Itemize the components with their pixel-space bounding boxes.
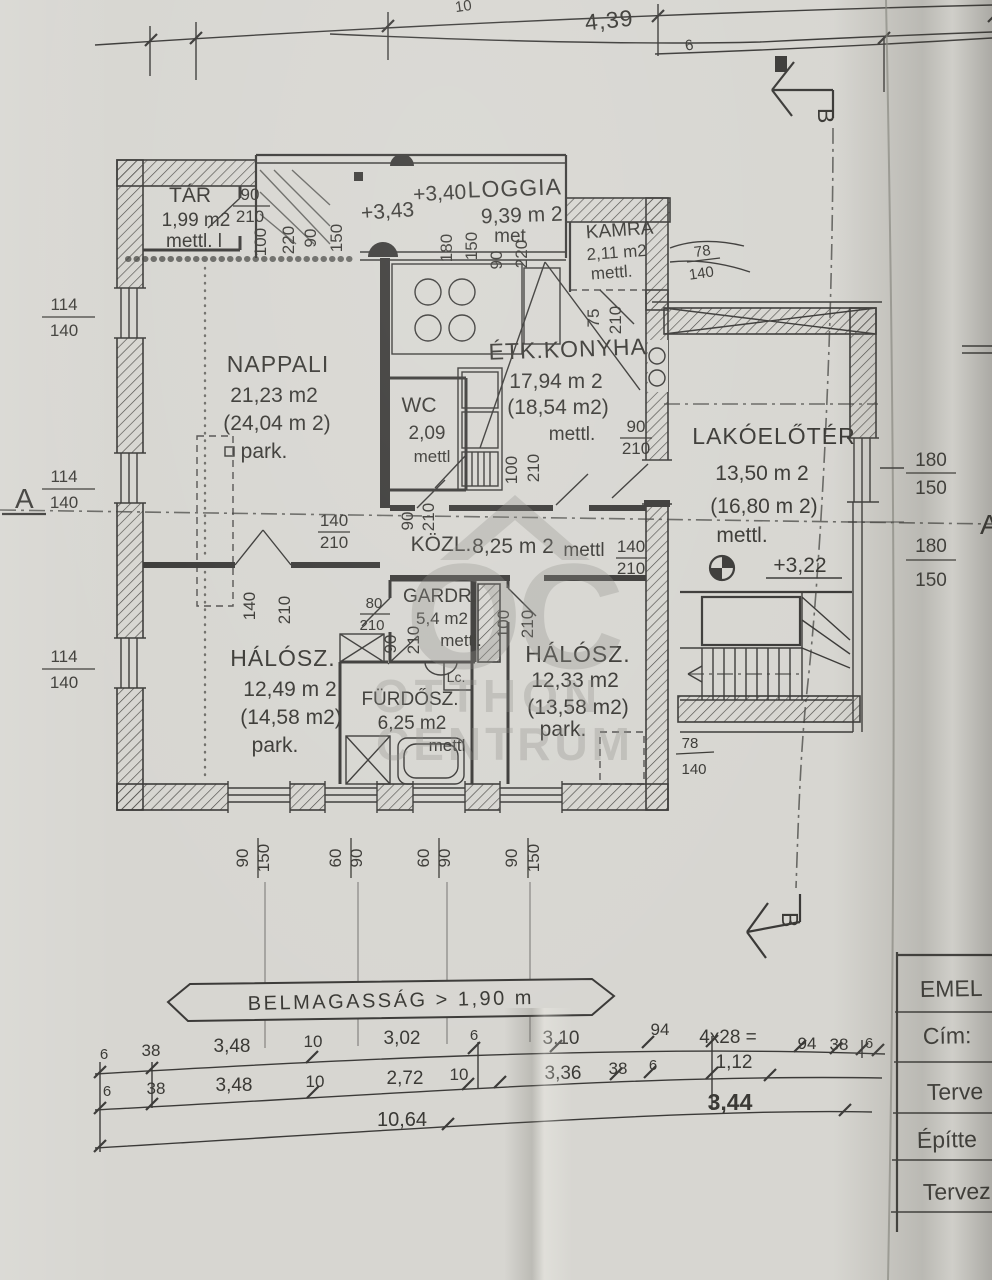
chain-dim: 38 <box>142 1041 161 1060</box>
room-konyha-floor: mettl. <box>549 424 595 445</box>
titleblock-row: EMEL <box>920 975 983 1002</box>
chain-dim: 3,48 <box>214 1036 251 1057</box>
chain-dim: 10 <box>450 1065 469 1084</box>
chain-dim: 6 <box>103 1083 111 1100</box>
chain-dim: 3,10 <box>543 1028 580 1049</box>
room-konyha-area: 17,94 m 2 <box>509 370 602 393</box>
dim-label: 210 <box>320 533 348 552</box>
chain-dim: 38 <box>147 1079 166 1098</box>
chain-dim: 6 <box>865 1035 873 1052</box>
watermark-line1: OTTHON <box>373 670 603 722</box>
level-terrace: +3,43 <box>360 198 415 225</box>
chain-dim: 38 <box>830 1035 849 1054</box>
dim-label: 100 <box>502 456 521 484</box>
section-a-label-left: A <box>15 483 34 514</box>
chain-dim: 6 <box>470 1027 478 1044</box>
chain-dim: 6 <box>100 1046 108 1063</box>
dim-label: 210 <box>524 454 543 482</box>
room-kamra-floor: mettl. <box>590 262 633 284</box>
dim-label: 210 <box>622 439 650 458</box>
titleblock-row: Építte <box>917 1126 978 1153</box>
dimension-chains: 6 38 3,48 10 3,02 6 3,10 94 4x28 = 94 38… <box>94 1020 885 1152</box>
dim-label: 114 <box>50 295 77 314</box>
title-block: EMEL Cím: Terve Építte Tervez <box>891 952 992 1232</box>
dim-label: 150 <box>254 844 273 872</box>
dim-label: 90 <box>301 229 320 248</box>
dim-top-10: 10 <box>454 0 473 16</box>
room-lakoeloter-floor: mettl. <box>716 524 767 547</box>
chain-dim: 2,72 <box>387 1068 424 1089</box>
chain-dim: 10 <box>304 1032 323 1051</box>
dim-label: 90 <box>487 251 506 270</box>
room-lakoeloter-area: 13,50 m 2 <box>715 462 808 485</box>
room-tar-name: TÁR <box>169 184 211 207</box>
room-wc-floor: mettl <box>414 447 451 466</box>
room-lakoeloter-area-alt: (16,80 m 2) <box>710 495 817 518</box>
room-konyha-area-alt: (18,54 m2) <box>507 396 609 419</box>
watermark: OC OTTHON CENTRUM <box>373 495 634 770</box>
dim-label: 220 <box>512 240 531 268</box>
room-wc-name: WC <box>402 394 437 417</box>
dim-label: 210 <box>236 207 264 226</box>
floorplan-svg: 4,39 6 10 A A B B <box>0 0 992 1280</box>
room-halosz1-area-alt: (14,58 m2) <box>240 706 342 729</box>
dim-label: 140 <box>320 511 348 530</box>
dim-label: 150 <box>915 478 947 499</box>
dim-label: 90 <box>241 185 260 204</box>
chain-dim: 1,12 <box>716 1052 753 1073</box>
scanned-floorplan-page: 4,39 6 10 A A B B <box>0 0 992 1280</box>
room-halosz1-name: HÁLÓSZ. <box>230 645 335 671</box>
room-nappali-floor: park. <box>241 440 288 463</box>
titleblock-row: Cím: <box>923 1022 972 1049</box>
dim-label: 90 <box>398 512 417 531</box>
dim-label: 140 <box>617 537 645 556</box>
dim-label: 60 <box>326 849 345 868</box>
chain-dim-344: 3,44 <box>708 1089 753 1115</box>
dim-label: 140 <box>50 673 78 692</box>
top-sheet-fragment: 4,39 6 10 <box>95 0 992 92</box>
dim-label: 140 <box>688 263 715 283</box>
room-konyha-name: ÉTK.KONYHA <box>488 333 647 365</box>
level-entry: +3,22 <box>773 554 826 577</box>
room-nappali-area: 21,23 m2 <box>230 384 318 407</box>
dim-label: 114 <box>50 647 77 666</box>
dim-label: 140 <box>681 761 706 778</box>
chain-dim: 3,48 <box>216 1075 253 1096</box>
dim-label: 90 <box>502 849 521 868</box>
dim-label: 180 <box>915 536 947 557</box>
dim-label: 78 <box>682 735 699 752</box>
room-loggia-name: LOGGIA <box>467 173 562 202</box>
section-b-label-top: B <box>813 108 839 124</box>
room-lakoeloter-name: LAKÓELŐTÉR <box>692 423 855 449</box>
dim-label: 140 <box>240 592 259 620</box>
titleblock-row: Terve <box>927 1078 984 1105</box>
dim-label: 78 <box>693 242 712 261</box>
room-wc-area: 2,09 <box>409 423 446 444</box>
headroom-banner: BELMAGASSÁG > 1,90 m <box>168 979 614 1021</box>
level-loggia: +3,40 <box>413 181 467 207</box>
section-a-label-right: A <box>980 509 992 540</box>
dim-label: 90 <box>347 849 366 868</box>
section-b-label-bottom: B <box>777 912 803 928</box>
chain-ticks <box>94 1035 884 1152</box>
dim-label: 150 <box>462 232 481 260</box>
chain-dim: 94 <box>798 1034 817 1053</box>
dim-label: 210 <box>606 306 625 334</box>
dim-top-total: 4,39 <box>584 5 635 36</box>
watermark-line2: CENTRUM <box>376 718 634 770</box>
room-kamra-area: 2,11 m2 <box>586 241 647 264</box>
room-tar-area: 1,99 m2 <box>162 210 231 231</box>
room-halosz1-area: 12,49 m 2 <box>243 678 336 701</box>
chain-dim: 3,02 <box>384 1028 421 1049</box>
room-tar-floor: mettl. l <box>166 231 222 252</box>
chain-dim: 10 <box>306 1072 325 1091</box>
chain-dim: 4x28 = <box>699 1027 757 1048</box>
chain-dim: 3,36 <box>545 1063 582 1084</box>
dim-label: 180 <box>915 450 947 471</box>
room-nappali-area-alt: (24,04 m 2) <box>223 412 330 435</box>
dim-label: 100 <box>251 228 270 256</box>
dim-label: 150 <box>915 570 947 591</box>
chain-dim: 38 <box>609 1059 628 1078</box>
dim-label: 90 <box>381 635 400 654</box>
dim-label: 180 <box>437 234 456 262</box>
titleblock-row: Tervez <box>923 1178 991 1205</box>
dim-label: 210 <box>275 596 294 624</box>
dim-label: 90 <box>435 849 454 868</box>
dim-label: 220 <box>279 226 298 254</box>
room-loggia-area: 9,39 m 2 <box>481 203 563 229</box>
dim-label: 80 <box>366 595 383 612</box>
dim-label: 114 <box>50 467 77 486</box>
room-nappali-name: NAPPALI <box>227 351 329 377</box>
chain-dim: 94 <box>651 1020 670 1039</box>
dim-label: 90 <box>627 417 646 436</box>
dim-label: 210 <box>419 503 438 531</box>
dim-top-6: 6 <box>684 36 695 54</box>
chain-dim: 6 <box>649 1057 657 1074</box>
dim-label: 140 <box>50 493 78 512</box>
dim-label: 150 <box>327 224 346 252</box>
dim-label: 140 <box>50 321 78 340</box>
dim-label: 90 <box>233 849 252 868</box>
dim-label: 75 <box>584 309 603 328</box>
chain-dim-total: 10,64 <box>377 1109 427 1131</box>
dim-label: 60 <box>414 849 433 868</box>
dim-label: 150 <box>524 844 543 872</box>
room-kamra-name: KAMRA <box>585 218 654 244</box>
room-halosz1-floor: park. <box>252 734 299 757</box>
dim-label: 210 <box>617 559 645 578</box>
dim-label: 210 <box>359 617 384 634</box>
